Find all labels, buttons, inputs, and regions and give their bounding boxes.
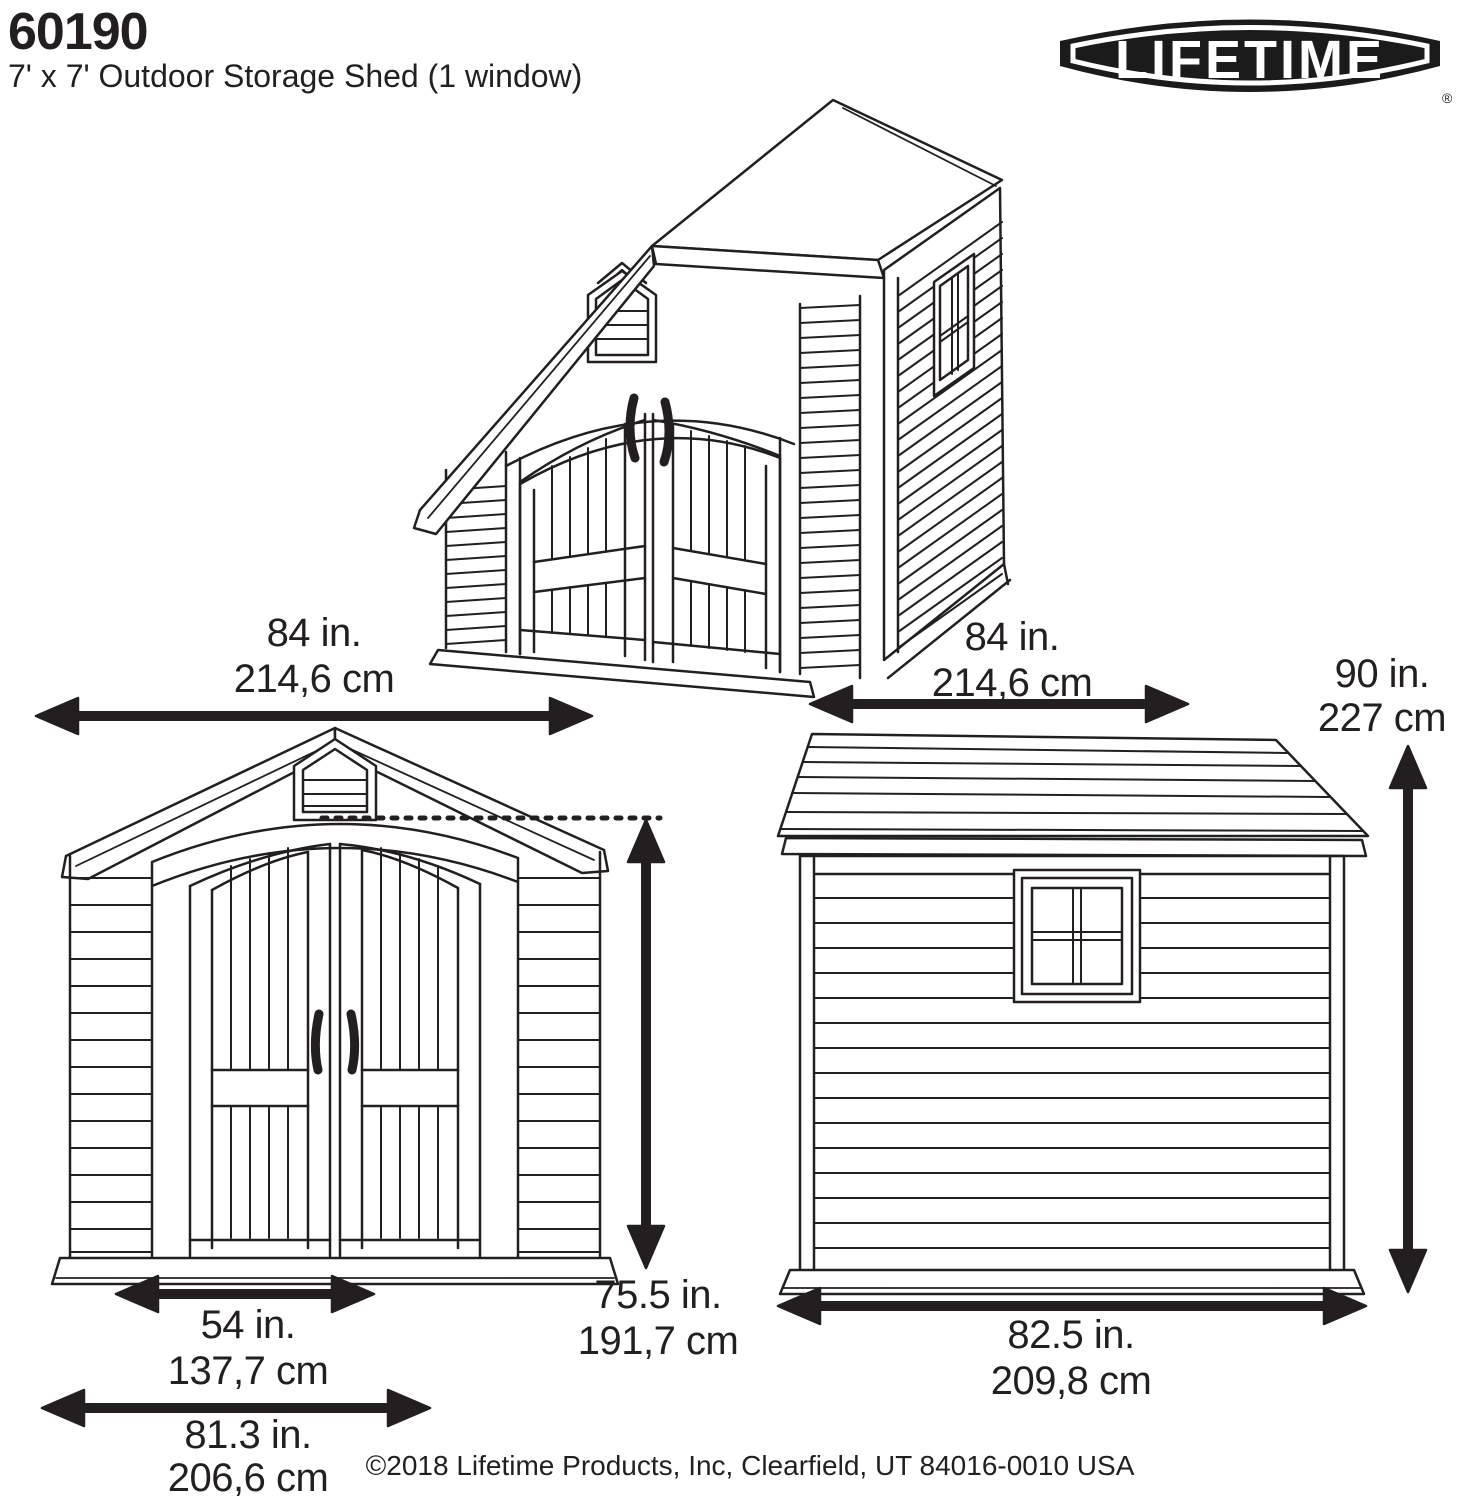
page-title: 60190	[8, 2, 148, 62]
height-metric: 227 cm	[1318, 696, 1446, 740]
base-depth-inches: 82.5 in.	[991, 1312, 1152, 1358]
front-width-metric: 214,6 cm	[234, 656, 395, 702]
door-handle-right	[664, 402, 669, 462]
logo-wordmark: LIFETIME	[1115, 30, 1385, 90]
height-dimension: 90 in. 227 cm	[1318, 652, 1446, 740]
door-width-dimension: 54 in. 137,7 cm	[168, 1302, 329, 1394]
door-width-inches: 54 in.	[168, 1302, 329, 1348]
product-subtitle: 7' x 7' Outdoor Storage Shed (1 window)	[8, 58, 582, 95]
depth-dimension: 84 in. 214,6 cm	[932, 614, 1093, 706]
front-view-drawing	[52, 728, 618, 1284]
base-depth-metric: 209,8 cm	[991, 1358, 1152, 1404]
perspective-view-drawing	[414, 100, 1010, 697]
base-width-inches: 81.3 in.	[168, 1414, 329, 1457]
side-view-drawing	[778, 734, 1368, 1294]
dimension-diagram-page: 60190 7' x 7' Outdoor Storage Shed (1 wi…	[0, 0, 1465, 1500]
lifetime-logo: LIFETIME	[1056, 8, 1444, 112]
depth-metric: 214,6 cm	[932, 660, 1093, 706]
front-width-inches: 84 in.	[234, 610, 395, 656]
front-width-arrow	[36, 698, 592, 734]
copyright-notice: ©2018 Lifetime Products, Inc, Clearfield…	[366, 1450, 1135, 1482]
door-height-metric: 191,7 cm	[578, 1318, 739, 1364]
door-width-metric: 137,7 cm	[168, 1348, 329, 1394]
door-height-inches: 75.5 in.	[578, 1272, 739, 1318]
base-width-metric: 206,6 cm	[168, 1457, 329, 1500]
front-width-dimension: 84 in. 214,6 cm	[234, 610, 395, 702]
height-inches: 90 in.	[1318, 652, 1446, 696]
side-view-window	[1014, 870, 1140, 1002]
base-depth-dimension: 82.5 in. 209,8 cm	[991, 1312, 1152, 1404]
front-door-handle-left	[315, 1014, 319, 1070]
door-handle-left	[630, 398, 635, 458]
door-height-arrow	[628, 820, 664, 1268]
height-arrow	[1390, 746, 1426, 1292]
depth-inches: 84 in.	[932, 614, 1093, 660]
base-width-dimension: 81.3 in. 206,6 cm	[168, 1414, 329, 1500]
registered-trademark-icon: ®	[1442, 90, 1452, 106]
front-door-handle-right	[351, 1014, 355, 1070]
door-height-dimension: 75.5 in. 191,7 cm	[578, 1272, 739, 1364]
